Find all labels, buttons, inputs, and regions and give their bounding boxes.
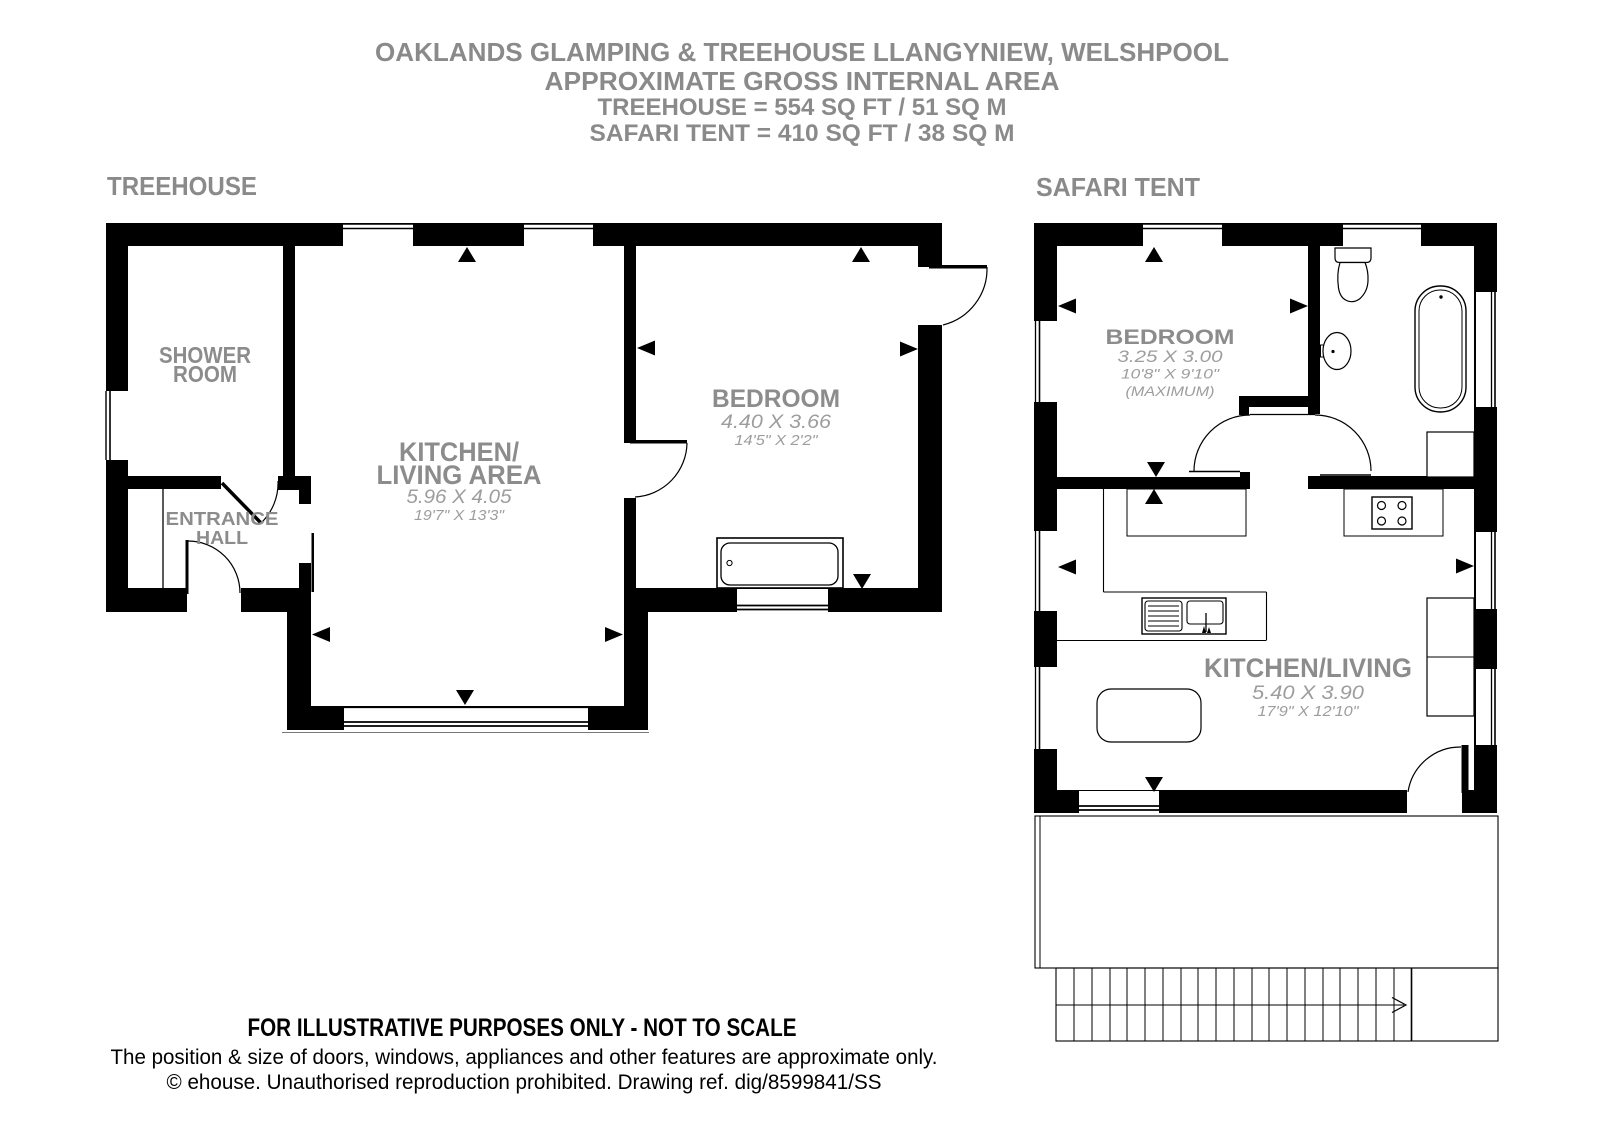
svg-text:BEDROOM: BEDROOM	[1106, 326, 1235, 349]
svg-text:ROOM: ROOM	[173, 361, 237, 387]
svg-text:HALL: HALL	[196, 528, 248, 548]
svg-text:19'7" X 13'3": 19'7" X 13'3"	[414, 507, 505, 524]
svg-text:TREEHOUSE = 554 SQ FT / 51 SQ: TREEHOUSE = 554 SQ FT / 51 SQ M	[598, 94, 1007, 121]
svg-text:SAFARI TENT = 410 SQ FT / 38 S: SAFARI TENT = 410 SQ FT / 38 SQ M	[590, 120, 1015, 147]
svg-text:APPROXIMATE GROSS INTERNAL ARE: APPROXIMATE GROSS INTERNAL AREA	[545, 66, 1060, 96]
svg-text:LIVING AREA: LIVING AREA	[377, 460, 542, 490]
svg-text:SAFARI TENT: SAFARI TENT	[1036, 172, 1200, 202]
svg-text:17'9" X 12'10": 17'9" X 12'10"	[1258, 703, 1360, 720]
svg-text:10'8" X 9'10": 10'8" X 9'10"	[1121, 366, 1220, 382]
svg-text:ENTRANCE: ENTRANCE	[166, 509, 279, 529]
svg-text:(MAXIMUM): (MAXIMUM)	[1126, 383, 1215, 399]
svg-text:KITCHEN/LIVING: KITCHEN/LIVING	[1204, 653, 1412, 683]
svg-text:TREEHOUSE: TREEHOUSE	[107, 171, 257, 201]
svg-text:5.96 X 4.05: 5.96 X 4.05	[407, 487, 512, 508]
svg-text:4.40 X 3.66: 4.40 X 3.66	[721, 412, 831, 433]
svg-text:BEDROOM: BEDROOM	[712, 385, 840, 413]
svg-text:5.40 X 3.90: 5.40 X 3.90	[1252, 683, 1364, 704]
svg-text:3.25 X 3.00: 3.25 X 3.00	[1118, 347, 1224, 366]
svg-text:© ehouse. Unauthorised reprodu: © ehouse. Unauthorised reproduction proh…	[167, 1071, 882, 1094]
svg-text:14'5" X 2'2": 14'5" X 2'2"	[735, 432, 819, 449]
svg-text:OAKLANDS GLAMPING & TREEHOUSE: OAKLANDS GLAMPING & TREEHOUSE LLANGYNIEW…	[375, 37, 1229, 67]
svg-text:The position & size of doors,: The position & size of doors, windows, a…	[111, 1046, 938, 1069]
svg-text:FOR ILLUSTRATIVE PURPOSES ONLY: FOR ILLUSTRATIVE PURPOSES ONLY - NOT TO …	[248, 1014, 797, 1042]
